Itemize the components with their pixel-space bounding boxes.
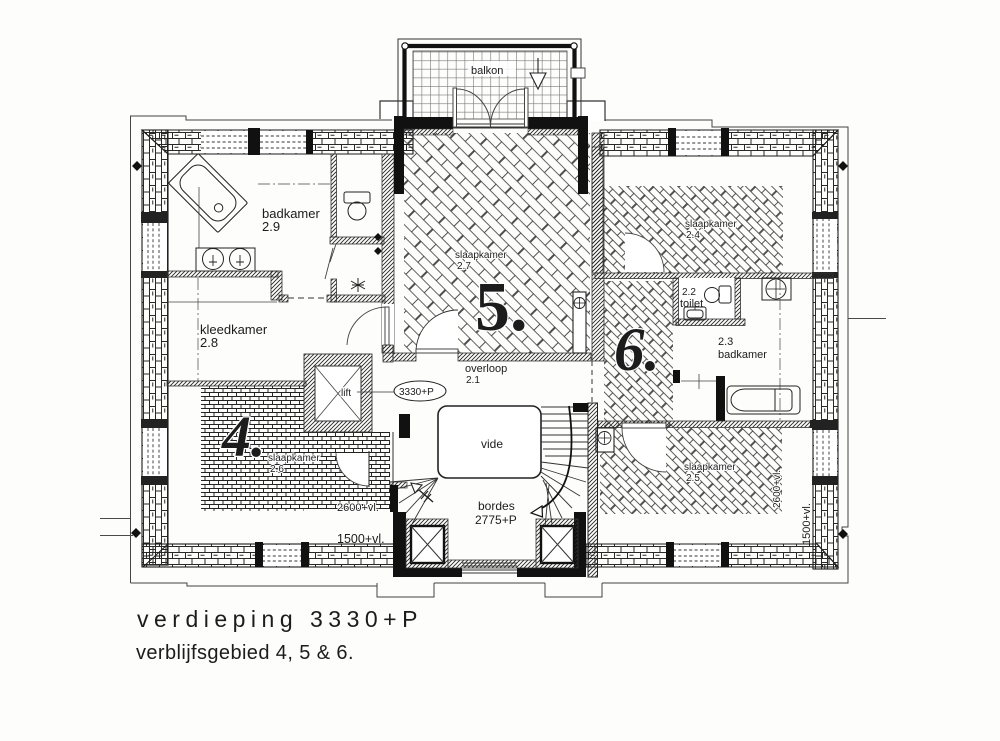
- svg-text:3330+P: 3330+P: [399, 387, 434, 398]
- svg-text:2600+vl.: 2600+vl.: [772, 470, 783, 508]
- svg-text:balkon: balkon: [471, 65, 503, 77]
- svg-text:verblijfsgebied 4, 5 & 6.: verblijfsgebied 4, 5 & 6.: [136, 642, 354, 664]
- svg-text:badkamer: badkamer: [718, 349, 767, 361]
- svg-text:2.9: 2.9: [262, 219, 280, 234]
- svg-text:2.1: 2.1: [466, 375, 480, 386]
- svg-text:2.2: 2.2: [682, 287, 696, 298]
- svg-text:1500+vl.: 1500+vl.: [801, 503, 813, 545]
- svg-text:slaapkamer: slaapkamer: [684, 462, 736, 473]
- svg-text:overloop: overloop: [465, 363, 507, 375]
- svg-text:vide: vide: [481, 437, 503, 451]
- svg-text:5.: 5.: [475, 269, 528, 346]
- svg-text:2775+P: 2775+P: [475, 513, 517, 527]
- svg-text:slaapkamer: slaapkamer: [455, 250, 507, 261]
- svg-text:toilet: toilet: [680, 298, 703, 310]
- svg-text:lift: lift: [341, 388, 351, 399]
- svg-text:2.6: 2.6: [270, 464, 284, 475]
- svg-text:1500+vl.: 1500+vl.: [337, 532, 385, 546]
- svg-text:verdieping 3330+P: verdieping 3330+P: [137, 606, 423, 632]
- svg-text:2.5: 2.5: [686, 473, 700, 484]
- svg-text:2.7: 2.7: [457, 261, 471, 272]
- svg-text:2.3: 2.3: [718, 336, 733, 348]
- svg-text:2.4: 2.4: [686, 230, 700, 241]
- svg-text:bordes: bordes: [478, 499, 515, 513]
- svg-text:slaapkamer: slaapkamer: [685, 219, 737, 230]
- svg-text:2.8: 2.8: [200, 335, 218, 350]
- svg-text:slaapkamer: slaapkamer: [268, 453, 320, 464]
- svg-text:4.: 4.: [221, 404, 266, 469]
- svg-text:2600+vl.: 2600+vl.: [337, 502, 379, 514]
- svg-text:6.: 6.: [614, 317, 660, 384]
